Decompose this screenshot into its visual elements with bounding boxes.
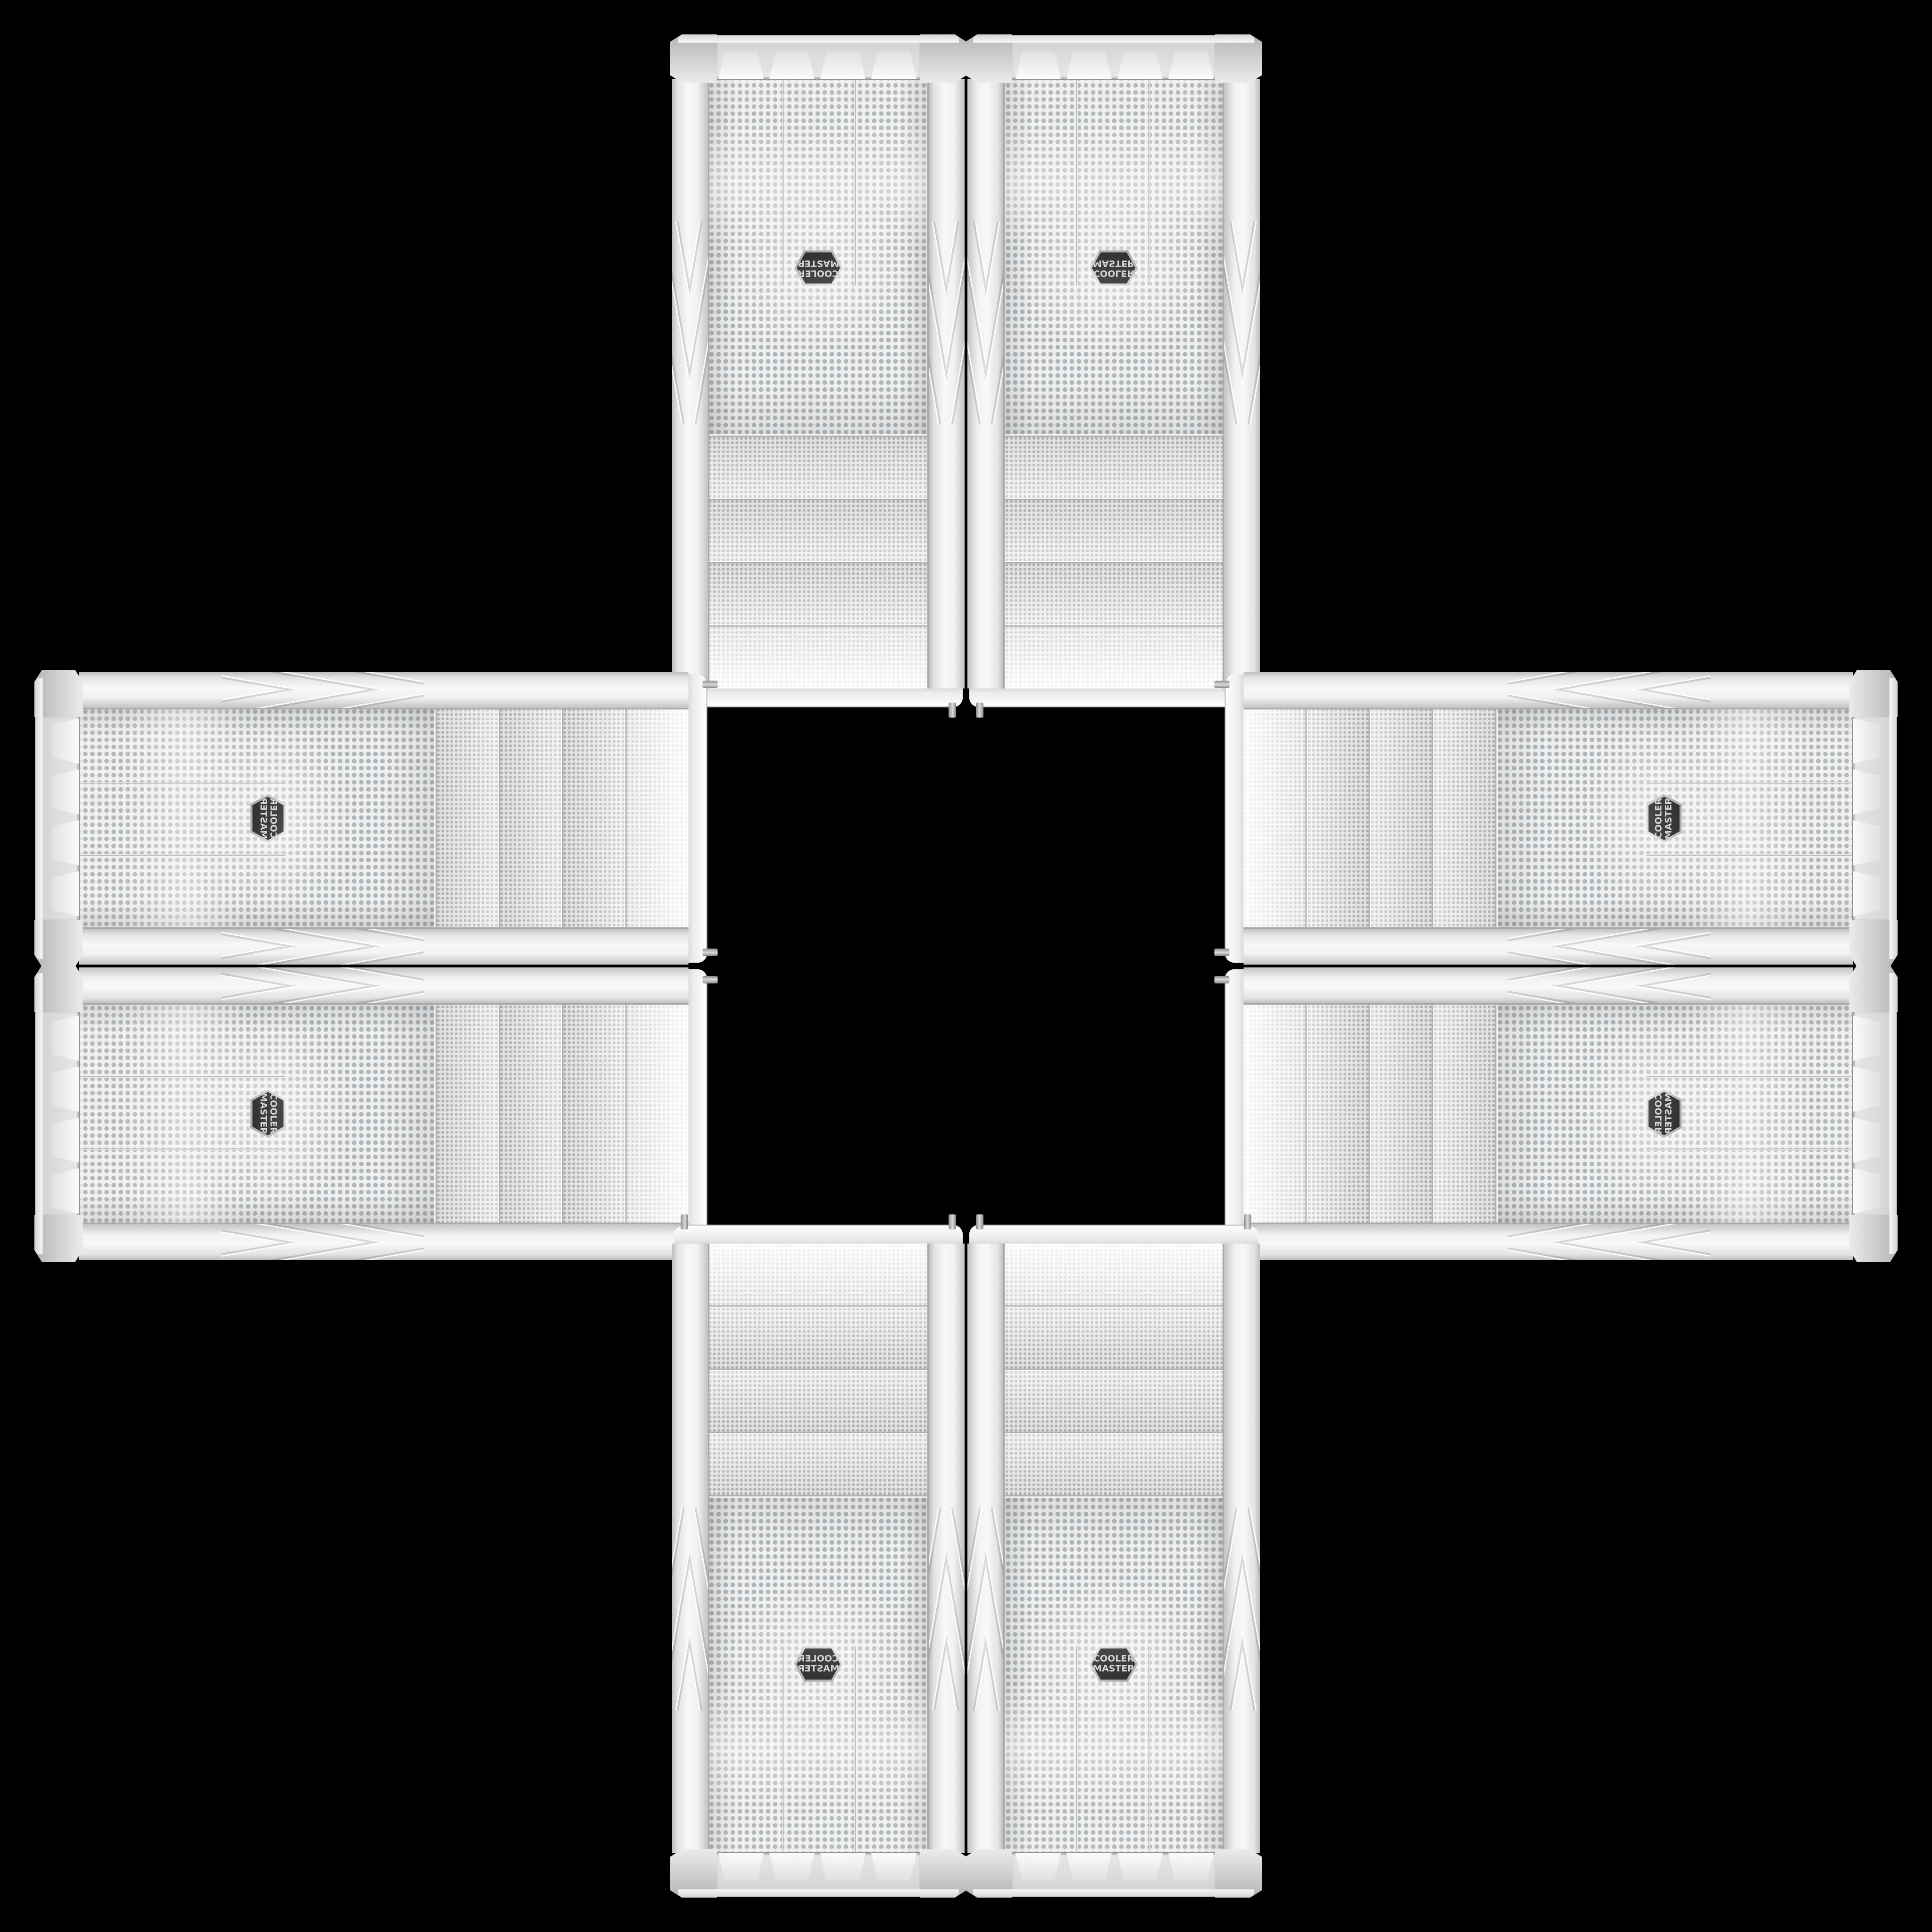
latch-clip [703, 976, 718, 983]
rail-grip-ribs [222, 672, 425, 708]
front-top-band [1225, 674, 1245, 963]
cap-bump [871, 1853, 916, 1881]
cap-band [42, 716, 79, 920]
cooler-master-badge-icon: COOLER MASTER [1645, 794, 1683, 842]
cap-bump [52, 1117, 79, 1163]
rail-grip-ribs [222, 1224, 425, 1260]
drive-bay-cover [709, 1370, 927, 1433]
drive-bay-cover [1433, 1005, 1497, 1223]
bottom-cap [967, 35, 1260, 79]
front-top-band [688, 969, 708, 1258]
side-rail-right [1244, 672, 1853, 708]
cap-bump [52, 1168, 79, 1214]
mesh-vertical-seam [1646, 854, 1853, 856]
cap-bump [1066, 52, 1112, 79]
front-mesh-panel: COOLER MASTER [708, 79, 929, 689]
main-mesh: COOLER MASTER [79, 709, 436, 927]
drive-bay-cover [709, 499, 927, 562]
main-mesh: COOLER MASTER [709, 1497, 927, 1853]
cooler-master-badge-icon: COOLER MASTER [249, 1090, 287, 1138]
drive-bay-cover [1005, 1244, 1223, 1307]
cap-lip [678, 1890, 959, 1897]
side-rail-right [79, 1224, 689, 1260]
drive-bay-cover [1005, 1433, 1223, 1497]
pc-case-right-bottom: COOLER MASTER [1225, 967, 1897, 1260]
drive-bay-cover [499, 709, 562, 927]
cap-bump [1853, 769, 1881, 815]
bottom-cap [35, 672, 79, 965]
drive-bay-cover [1005, 562, 1223, 625]
cap-band [1853, 716, 1890, 920]
side-rail-left [929, 79, 965, 689]
drive-bay-cover [625, 1005, 689, 1223]
bottom-cap [672, 35, 965, 79]
side-rail-left [929, 1244, 965, 1853]
drive-bay-cover [1244, 709, 1307, 927]
pc-case-left-top: COOLER MASTER [35, 672, 708, 965]
cap-bump [1066, 1853, 1112, 1881]
badge-face: COOLER MASTER [251, 1092, 284, 1135]
cap-bump [52, 820, 79, 866]
pc-case-left-bottom: COOLER MASTER [35, 967, 708, 1260]
rail-grip-ribs [1224, 1508, 1260, 1711]
cap-bump [820, 52, 866, 79]
cooler-master-badge-icon: COOLER MASTER [1090, 249, 1138, 287]
drive-bay-cover [1370, 1005, 1433, 1223]
cap-band [42, 1012, 79, 1216]
badge-line-2: MASTER [1093, 1664, 1134, 1674]
front-mesh-panel: COOLER MASTER [708, 1244, 929, 1853]
latch-clip [1215, 976, 1230, 983]
rail-grip-ribs [1508, 967, 1711, 1003]
drive-bay-cover [1370, 709, 1433, 927]
drive-bay-cover [709, 436, 927, 499]
front-top-band [1225, 969, 1245, 1258]
badge-line-1: COOLER [798, 1654, 839, 1664]
drive-bay-cover [499, 1005, 562, 1223]
badge-face: COOLER MASTER [251, 797, 284, 840]
bottom-cap [1853, 967, 1897, 1260]
drive-bay-cover [1005, 436, 1223, 499]
drive-bay-cover [562, 1005, 625, 1223]
drive-bay-cover [1005, 1307, 1223, 1370]
badge-line-1: COOLER [268, 798, 278, 839]
front-mesh-panel: COOLER MASTER [1003, 79, 1224, 689]
drive-bay-cover [625, 709, 689, 927]
drive-bay-cover [562, 709, 625, 927]
scene: COOLER MASTER [0, 0, 1932, 1932]
latch-clip [703, 681, 718, 688]
cap-bump [1853, 1016, 1881, 1061]
cap-bump [718, 1853, 764, 1881]
cap-bump [52, 1066, 79, 1112]
mesh-vertical-seam [79, 782, 286, 783]
badge-face: COOLER MASTER [797, 251, 840, 284]
cooler-master-badge-icon: COOLER MASTER [794, 1645, 842, 1683]
cap-lip [973, 1890, 1254, 1897]
front-top-band [674, 688, 963, 708]
front-mesh-panel: COOLER MASTER [1244, 708, 1853, 929]
cap-lip [1890, 678, 1897, 959]
badge-line-1: COOLER [268, 1093, 278, 1134]
side-rail-right [672, 1244, 708, 1853]
cooler-master-badge-icon: COOLER MASTER [249, 794, 287, 842]
cap-bump [1117, 52, 1163, 79]
mesh-vertical-seam [1149, 79, 1150, 286]
latch-clip [1244, 1215, 1251, 1230]
bottom-cap [672, 1853, 965, 1897]
rail-grip-ribs [222, 967, 425, 1003]
mesh-vertical-seam [854, 1646, 856, 1853]
latch-clip [949, 703, 956, 718]
cooler-master-badge-icon: COOLER MASTER [1645, 1090, 1683, 1138]
cap-band [1012, 1853, 1216, 1890]
rail-grip-ribs [222, 929, 425, 965]
mesh-vertical-seam [1076, 1646, 1078, 1853]
front-mesh-panel: COOLER MASTER [1003, 1244, 1224, 1853]
latch-clip [681, 1215, 688, 1230]
front-top-band [688, 674, 708, 963]
rail-grip-ribs [967, 1508, 1003, 1711]
rail-grip-ribs [1508, 672, 1711, 708]
rail-grip-ribs [1508, 1224, 1711, 1260]
drive-bay-cover [709, 562, 927, 625]
main-mesh: COOLER MASTER [709, 79, 927, 436]
drive-bay-cover [709, 625, 927, 689]
latch-clip [703, 949, 718, 956]
cap-lip [35, 678, 43, 959]
badge-face: COOLER MASTER [1092, 1648, 1135, 1681]
cap-band [716, 1853, 920, 1890]
front-mesh-panel: COOLER MASTER [79, 708, 689, 929]
cap-band [1853, 1012, 1890, 1216]
cap-bump [52, 1016, 79, 1061]
badge-face: COOLER MASTER [797, 1648, 840, 1681]
badge-line-2: MASTER [798, 258, 839, 268]
cap-bump [871, 52, 916, 79]
bottom-cap [1853, 672, 1897, 965]
badge-line-1: COOLER [798, 268, 839, 278]
mesh-vertical-seam [1646, 782, 1853, 783]
cap-bump [820, 1853, 866, 1881]
drive-bay-cover [1433, 709, 1497, 927]
badge-line-2: MASTER [1664, 1093, 1674, 1134]
side-rail-left [967, 79, 1003, 689]
pc-case-bottom-right: COOLER MASTER [967, 1225, 1260, 1897]
side-rail-right [79, 672, 689, 708]
cap-bump [52, 871, 79, 916]
badge-face: COOLER MASTER [1092, 251, 1135, 284]
cap-bump [52, 718, 79, 764]
side-rail-left [1244, 929, 1853, 965]
side-rail-right [1224, 79, 1260, 689]
latch-clip [976, 703, 983, 718]
cap-lip [1890, 973, 1897, 1254]
rail-grip-ribs [1224, 222, 1260, 425]
side-rail-left [79, 967, 689, 1003]
main-mesh: COOLER MASTER [1497, 709, 1853, 927]
badge-line-2: MASTER [1093, 258, 1134, 268]
drive-bay-cover [709, 1244, 927, 1307]
latch-clip [949, 1215, 956, 1230]
cap-bump [1168, 1853, 1214, 1881]
drive-bay-cover [709, 1433, 927, 1497]
badge-line-2: MASTER [258, 798, 268, 839]
cap-bump [1853, 871, 1881, 916]
side-rail-left [1244, 967, 1853, 1003]
cap-bump [769, 52, 815, 79]
cap-bump [1168, 52, 1214, 79]
mesh-vertical-seam [79, 1149, 286, 1150]
mesh-vertical-seam [854, 79, 856, 286]
rail-grip-ribs [929, 1508, 965, 1711]
front-top-band [969, 1225, 1258, 1245]
cap-lip [35, 973, 43, 1254]
pc-case-right-top: COOLER MASTER [1225, 672, 1897, 965]
drive-bay-cover [436, 1005, 499, 1223]
drive-bay-cover [709, 1307, 927, 1370]
latch-clip [1215, 949, 1230, 956]
badge-line-1: COOLER [1093, 268, 1134, 278]
side-rail-right [1244, 1224, 1853, 1260]
side-rail-left [967, 1244, 1003, 1853]
front-mesh-panel: COOLER MASTER [1244, 1003, 1853, 1224]
cap-bump [769, 1853, 815, 1881]
main-mesh: COOLER MASTER [1005, 1497, 1223, 1853]
main-mesh: COOLER MASTER [1005, 79, 1223, 436]
badge-face: COOLER MASTER [1648, 1092, 1681, 1135]
side-rail-right [672, 79, 708, 689]
cap-bump [1853, 1066, 1881, 1112]
rail-grip-ribs [1508, 929, 1711, 965]
main-mesh: COOLER MASTER [1497, 1005, 1853, 1223]
badge-line-1: COOLER [1654, 798, 1664, 839]
cap-bump [718, 52, 764, 79]
mesh-vertical-seam [1076, 79, 1078, 286]
drive-bay-cover [1005, 499, 1223, 562]
cap-lip [678, 35, 959, 43]
badge-line-2: MASTER [798, 1664, 839, 1674]
bottom-cap [35, 967, 79, 1260]
cap-bump [1853, 1168, 1881, 1214]
cap-bump [1853, 820, 1881, 866]
main-mesh: COOLER MASTER [79, 1005, 436, 1223]
rail-grip-ribs [929, 222, 965, 425]
drive-bay-cover [1005, 1370, 1223, 1433]
mesh-vertical-seam [79, 1076, 286, 1078]
drive-bay-cover [1307, 1005, 1370, 1223]
rail-grip-ribs [672, 222, 708, 425]
mesh-vertical-seam [1646, 1076, 1853, 1078]
drive-bay-cover [1244, 1005, 1307, 1223]
cooler-master-badge-icon: COOLER MASTER [794, 249, 842, 287]
front-top-band [969, 688, 1258, 708]
side-rail-right [1224, 1244, 1260, 1853]
cap-bump [1853, 1117, 1881, 1163]
cap-bump [1016, 52, 1061, 79]
mesh-vertical-seam [782, 1646, 783, 1853]
pc-case-bottom-left: COOLER MASTER [672, 1225, 965, 1897]
cap-band [716, 42, 920, 79]
badge-line-1: COOLER [1093, 1654, 1134, 1664]
drive-bay-cover [436, 709, 499, 927]
front-top-band [674, 1225, 963, 1245]
rail-grip-ribs [967, 222, 1003, 425]
cap-band [1012, 42, 1216, 79]
drive-bay-cover [1307, 709, 1370, 927]
pc-case-top-left: COOLER MASTER [672, 35, 965, 708]
badge-line-2: MASTER [1664, 798, 1674, 839]
cap-bump [1117, 1853, 1163, 1881]
badge-line-2: MASTER [258, 1093, 268, 1134]
latch-clip [976, 1215, 983, 1230]
mesh-vertical-seam [1646, 1149, 1853, 1150]
cooler-master-badge-icon: COOLER MASTER [1090, 1645, 1138, 1683]
drive-bay-cover [1005, 625, 1223, 689]
cap-bump [1853, 718, 1881, 764]
side-rail-left [79, 929, 689, 965]
rail-grip-ribs [672, 1508, 708, 1711]
cap-bump [1016, 1853, 1061, 1881]
badge-face: COOLER MASTER [1648, 797, 1681, 840]
front-mesh-panel: COOLER MASTER [79, 1003, 689, 1224]
cap-lip [973, 35, 1254, 43]
badge-line-1: COOLER [1654, 1093, 1664, 1134]
pc-case-top-right: COOLER MASTER [967, 35, 1260, 708]
bottom-cap [967, 1853, 1260, 1897]
mesh-vertical-seam [782, 79, 783, 286]
mesh-vertical-seam [79, 854, 286, 856]
latch-clip [1215, 681, 1230, 688]
mesh-vertical-seam [1149, 1646, 1150, 1853]
cap-bump [52, 769, 79, 815]
